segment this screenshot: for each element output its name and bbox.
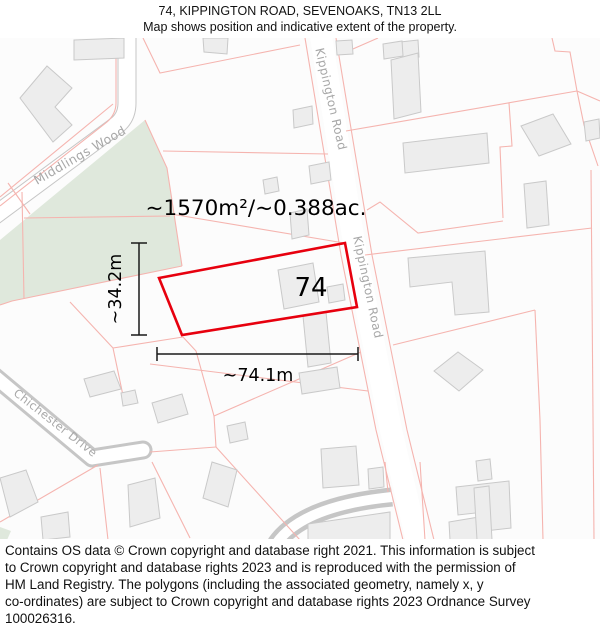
screenshot-stage: ~34.2m ~74.1m ~1570m²/~0.388ac. 74 Kippi… [0,0,600,625]
width-dimension-label: ~74.1m [223,366,294,386]
attribution-line: co-ordinates) are subject to Crown copyr… [0,593,600,610]
road-label-chichester-drive: Chichester Drive [11,386,100,460]
property-map: ~34.2m ~74.1m ~1570m²/~0.388ac. 74 Kippi… [0,0,600,625]
page-subtitle: Map shows position and indicative extent… [0,20,600,34]
attribution-line: HM Land Registry. The polygons (includin… [0,576,600,593]
area-label: ~1570m²/~0.388ac. [146,196,367,221]
attribution-line: 100026316. [0,610,600,625]
plot-number-label: 74 [294,273,327,303]
attribution-line: to Crown copyright and database rights 2… [0,559,600,576]
map-header: 74, KIPPINGTON ROAD, SEVENOAKS, TN13 2LL… [0,0,600,38]
page-title: 74, KIPPINGTON ROAD, SEVENOAKS, TN13 2LL [0,0,600,18]
attribution-line: Contains OS data © Crown copyright and d… [0,539,600,559]
attribution-footer: Contains OS data © Crown copyright and d… [0,539,600,625]
height-dimension-label: ~34.2m [106,254,126,325]
